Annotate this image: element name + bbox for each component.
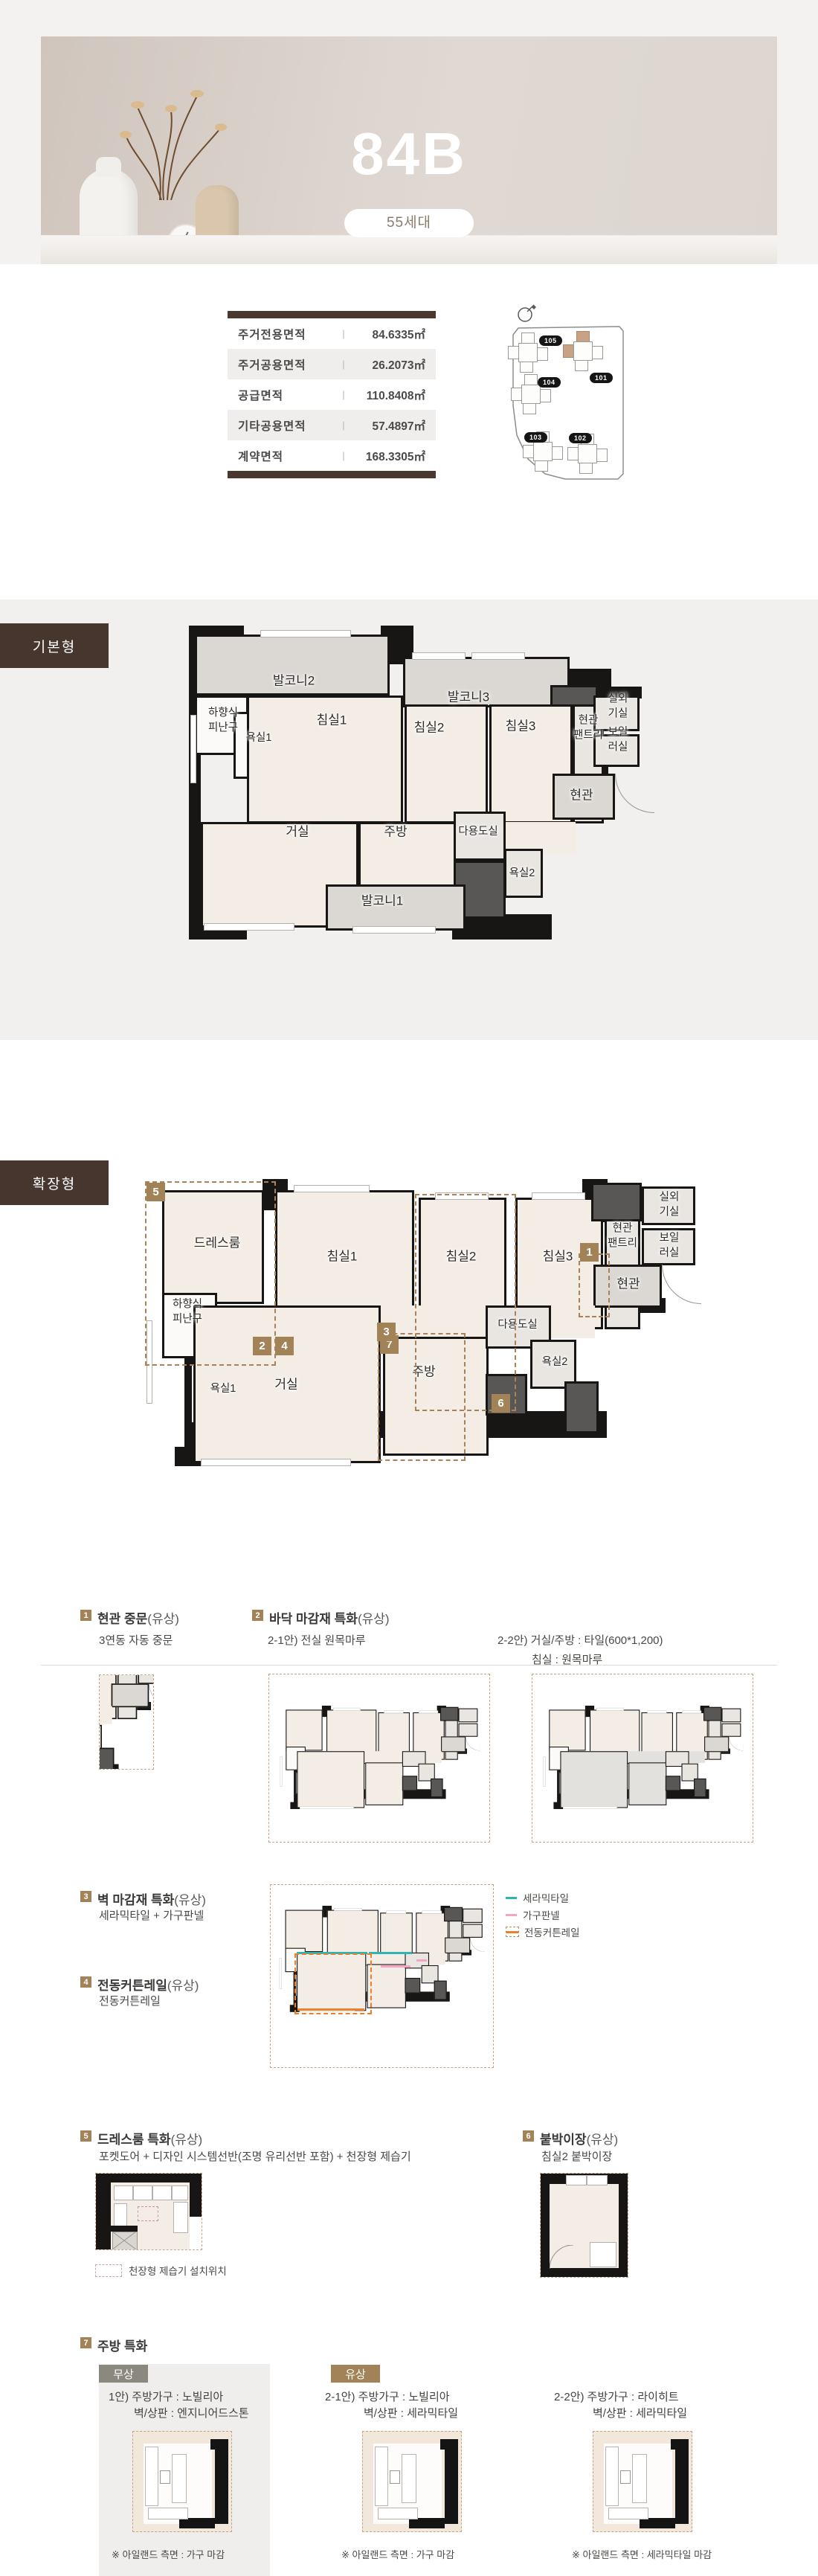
area-table-row: 주거공용면적 | 26.2073㎡	[228, 349, 436, 379]
feature-2-thumbnail-1	[268, 1674, 490, 1843]
building-wing	[518, 343, 538, 362]
room-v3	[431, 1779, 443, 1797]
room-label-boiler: 보일러실	[606, 725, 630, 754]
room-kitchen	[367, 1964, 406, 2008]
kitchen-option-text: 2-1안) 주방가구 : 노빌리아 벽/상판 : 세라믹타일	[325, 2389, 458, 2422]
room-label-living: 거실	[286, 824, 309, 841]
room-boiler	[138, 1674, 154, 1684]
feature-6-number-badge: 6	[523, 2130, 534, 2142]
room-label-bed3: 침실3	[506, 719, 536, 736]
entry-door-arc	[729, 1736, 743, 1750]
feature-3-sub: 세라믹타일 + 가구판넬	[99, 1907, 204, 1923]
entry-door-arc	[466, 1736, 480, 1750]
room-dress	[549, 1709, 585, 1750]
room-v1	[440, 1707, 458, 1721]
feature-4-header: 4 전동커튼레일(유상)	[80, 1975, 199, 1994]
area-row-value: 57.4897㎡	[352, 417, 425, 434]
feature-1-thumbnail	[99, 1674, 154, 1770]
feature-number-badge-3: 3	[377, 1323, 396, 1341]
feature-2-number-badge: 2	[252, 1610, 263, 1621]
building-wing	[578, 444, 597, 463]
curtain-rail-zone	[294, 1953, 372, 2014]
entry-door-arc	[615, 774, 654, 813]
window	[294, 1185, 370, 1192]
dehumidifier-location-mark	[138, 2206, 158, 2221]
room-v3	[434, 1981, 447, 2000]
table-bottom-bar	[228, 471, 436, 478]
window	[334, 1908, 362, 1911]
feature-6-title: 붙박이장(유상)	[540, 2129, 618, 2148]
feature-6-header: 6 붙박이장(유상)	[523, 2129, 618, 2148]
area-row-value: 84.6335㎡	[352, 326, 425, 342]
room-boiler	[463, 1924, 483, 1938]
area-table-row: 주거전용면적 | 84.6335㎡	[228, 318, 436, 349]
legend-color-swatch	[506, 1897, 517, 1899]
area-row-divider: |	[335, 359, 352, 370]
room-outdoor	[458, 1709, 477, 1723]
area-row-value: 26.2073㎡	[352, 356, 425, 373]
kitchen-plan-3	[593, 2431, 692, 2532]
window	[384, 1710, 403, 1713]
room-label-bed1: 침실1	[317, 713, 347, 730]
room-hall	[99, 1706, 112, 1724]
window	[280, 1756, 283, 1786]
window	[647, 1710, 666, 1713]
room-kitchen	[628, 1762, 666, 1805]
area-row-value: 110.8408㎡	[352, 387, 425, 403]
room-v2	[666, 1776, 680, 1790]
area-table: 주거전용면적 | 84.6335㎡주거공용면적 | 26.2073㎡공급면적 |…	[228, 311, 436, 478]
section-divider	[41, 1665, 777, 1666]
room-v1	[703, 1707, 721, 1721]
feature-2-title: 바닥 마감재 특화(유상)	[269, 1608, 390, 1627]
area-row-divider: |	[335, 389, 352, 400]
expanded-type-tag: 확장형	[0, 1160, 109, 1205]
feature-7-title: 주방 특화	[97, 2336, 147, 2354]
building-wing	[521, 385, 541, 404]
wall-legend-item: 세라믹타일	[506, 1890, 569, 1905]
room-entry	[704, 1736, 729, 1752]
window	[596, 1708, 624, 1711]
feature-4-title: 전동커튼레일(유상)	[97, 1975, 199, 1994]
building-101: 101	[563, 331, 602, 370]
window	[563, 1806, 617, 1809]
paid-badge: 유상	[331, 2365, 380, 2383]
room-label-pantry: 현관 팬트리	[608, 1221, 637, 1250]
curtain-rail-legend-swatch	[506, 1927, 519, 1937]
building-103: 103	[523, 431, 561, 470]
building-label-104: 104	[538, 377, 561, 388]
room-outdoor	[721, 1709, 741, 1723]
area-row-label: 공급면적	[238, 387, 335, 403]
mini-expanded-plan-drawing	[280, 1706, 479, 1810]
room-label-boiler: 보일러실	[654, 1231, 684, 1260]
building-wing	[573, 341, 593, 361]
room-label-bath2: 욕실2	[542, 1355, 568, 1370]
window	[386, 1911, 406, 1914]
room-label-bed3: 침실3	[543, 1249, 573, 1266]
feature-1-title: 현관 중문(유상)	[97, 1608, 179, 1627]
window	[412, 652, 466, 660]
curtain-rail-highlight	[297, 2008, 364, 2011]
room-label-bath2: 욕실2	[509, 867, 535, 881]
room-v2	[402, 1776, 417, 1790]
area-row-divider: |	[335, 450, 352, 461]
feature-3-header: 3 벽 마감재 특화(유상)	[80, 1889, 206, 1908]
kitchen-island	[632, 2454, 647, 2503]
room-entry	[112, 1683, 149, 1707]
room-label-bed2: 침실2	[414, 720, 445, 737]
feature-5-header: 5 드레스룸 특화(유상)	[80, 2129, 202, 2148]
building-wing	[533, 442, 553, 461]
window	[201, 1459, 351, 1466]
feature-number-badge-5: 5	[146, 1183, 165, 1201]
feature-zone-outline	[579, 1253, 610, 1317]
window	[280, 1958, 282, 1988]
feature-2-thumbnail-2	[532, 1674, 753, 1843]
feature-4-number-badge: 4	[80, 1976, 91, 1988]
feature-2-option1: 2-1안) 전실 원목마루	[268, 1632, 366, 1648]
window	[471, 652, 525, 660]
building-label-103: 103	[524, 432, 547, 443]
room-v1	[591, 1183, 642, 1221]
window	[532, 1192, 585, 1200]
room-label-bed1: 침실1	[327, 1249, 358, 1266]
area-row-label: 주거공용면적	[238, 356, 335, 373]
mini-expanded-plan-drawing	[543, 1706, 742, 1810]
window	[260, 630, 351, 637]
window	[333, 1708, 361, 1711]
building-label-101: 101	[590, 373, 613, 383]
kitchen-option-text: 1안) 주방가구 : 노빌리아 벽/상판 : 엔지니어드스톤	[109, 2389, 249, 2422]
area-table-row: 기타공용면적 | 57.4897㎡	[228, 410, 436, 440]
kitchen-island	[402, 2454, 416, 2503]
feature-7-number-badge: 7	[80, 2337, 91, 2348]
compass-icon	[518, 305, 536, 321]
mini-expanded-plan-drawing	[99, 1674, 154, 1770]
room-dress	[286, 1709, 322, 1750]
room-entry	[445, 1938, 470, 1953]
room-label-pantry: 현관 팬트리	[573, 713, 603, 742]
feature-1-header: 1 현관 중문(유상)	[80, 1608, 179, 1627]
building-label-102: 102	[569, 433, 592, 443]
feature-7-header: 7 주방 특화	[80, 2336, 147, 2354]
feature-5-number-badge: 5	[80, 2130, 91, 2142]
window	[204, 923, 294, 931]
feature-5-sub: 포켓도어 + 디자인 시스템선반(조명 유리선반 포함) + 천장형 제습기	[99, 2148, 411, 2164]
window	[300, 1806, 354, 1809]
area-table-row: 공급면적 | 110.8408㎡	[228, 379, 436, 410]
unit-type-title: 84B	[41, 124, 777, 184]
room-label-kitchen: 주방	[384, 824, 407, 841]
feature-number-badge-1: 1	[580, 1243, 599, 1262]
feature-number-badge-2: 2	[253, 1337, 271, 1355]
room-label-balc3: 발코니3	[448, 690, 489, 707]
feature-5-title: 드레스룸 특화(유상)	[97, 2129, 202, 2148]
feature-6-sub: 침실2 붙박이장	[541, 2148, 612, 2164]
dehumidifier-legend-swatch	[95, 2264, 122, 2277]
building-label-105: 105	[539, 335, 562, 346]
room-label-balc2: 발코니2	[273, 673, 315, 690]
room-label-entry: 현관	[616, 1276, 640, 1294]
room-label-bath1: 욕실1	[246, 731, 272, 746]
area-row-divider: |	[335, 420, 352, 431]
dehumidifier-legend: 천장형 제습기 설치위치	[95, 2263, 227, 2278]
room-dress	[286, 1910, 323, 1953]
kitchen-option-note: ※ 아일랜드 측면 : 가구 마감	[112, 2547, 225, 2561]
feature-4-sub: 전동커튼레일	[99, 1993, 161, 2008]
site-map: 105101104103102	[495, 301, 688, 491]
room-label-outdoor: 실외기실	[654, 1190, 684, 1219]
room-v3	[564, 1381, 599, 1433]
room-label-utility: 다용도실	[458, 825, 497, 840]
room-label-outdoor: 실외기실	[606, 692, 630, 721]
household-count-badge: 55세대	[344, 209, 474, 237]
kitchen-plan-2	[362, 2431, 462, 2532]
kitchen-option-text: 2-2안) 주방가구 : 라이히트 벽/상판 : 세라믹타일	[554, 2389, 687, 2422]
feature-1-sub: 3연동 자동 중문	[99, 1632, 173, 1648]
furniture-panel-highlight-2	[416, 1959, 427, 1962]
brochure-page: 84B 55세대 주거전용면적 | 84.6335㎡주거공용면적 | 26.20…	[0, 0, 818, 2576]
window	[190, 715, 196, 783]
room-label-entry: 현관	[570, 788, 593, 805]
shelf-decor	[41, 235, 777, 264]
bedroom2-closet-plan	[540, 2173, 628, 2278]
room-v2	[405, 1978, 420, 1994]
feature-1-number-badge: 1	[80, 1610, 91, 1621]
room-boiler	[721, 1724, 741, 1737]
legend-color-swatch	[506, 1914, 517, 1916]
hero-band: 84B 55세대	[0, 0, 818, 264]
room-kitchen	[365, 1762, 403, 1805]
area-row-divider: |	[335, 328, 352, 339]
feature-3-number-badge: 3	[80, 1891, 91, 1902]
window	[352, 926, 436, 934]
building-104: 104	[511, 374, 550, 413]
basic-type-tag: 기본형	[0, 623, 109, 668]
feature-2-option2-line2: 침실 : 원목마루	[532, 1651, 602, 1667]
feature-2-header: 2 바닥 마감재 특화(유상)	[252, 1608, 390, 1627]
area-row-label: 기타공용면적	[238, 417, 335, 434]
window	[544, 1756, 546, 1786]
room-label-bath1: 욕실1	[210, 1382, 236, 1397]
area-row-label: 주거전용면적	[238, 326, 335, 342]
dressroom-detail-plan	[95, 2173, 202, 2250]
ceramic-tile-highlight-2	[369, 1952, 412, 1954]
room-label-balc1: 발코니1	[361, 893, 403, 910]
room-v3	[99, 1748, 115, 1770]
wall-finish-plan-thumbnail	[270, 1884, 494, 2068]
room-label-living: 거실	[274, 1377, 297, 1394]
feature-number-badge-4: 4	[275, 1337, 294, 1355]
table-top-bar	[228, 311, 436, 318]
room-boiler	[458, 1724, 477, 1737]
kitchen-island	[172, 2454, 187, 2503]
window	[419, 1710, 438, 1713]
room-label-escape: 하향식 피난구	[208, 706, 238, 735]
room-living	[560, 1751, 628, 1808]
feature-number-badge-6: 6	[492, 1394, 510, 1413]
kitchen-plan-1	[132, 2431, 232, 2532]
room-v1	[444, 1907, 463, 1921]
room-entry	[441, 1736, 466, 1752]
furniture-panel-highlight	[381, 1965, 410, 1968]
kitchen-option-note: ※ 아일랜드 측면 : 세라믹타일 마감	[572, 2547, 712, 2561]
entry-door-arc	[662, 1265, 701, 1304]
wall-legend-item: 가구판넬	[506, 1907, 560, 1922]
area-table-row: 계약면적 | 168.3305㎡	[228, 440, 436, 471]
building-105: 105	[508, 333, 547, 371]
kitchen-option-note: ※ 아일랜드 측면 : 가구 마감	[341, 2547, 454, 2561]
feature-3-title: 벽 마감재 특화(유상)	[97, 1889, 206, 1908]
room-v3	[694, 1779, 706, 1797]
built-in-closet	[590, 2242, 616, 2267]
building-102: 102	[567, 434, 606, 472]
window	[422, 1911, 442, 1914]
hero-photo: 84B 55세대	[41, 36, 777, 264]
expanded-plan-drawing: 드레스룸하향식 피난구욕실1침실1침실2침실3현관 팬트리실외기실보일러실현관거…	[145, 1179, 699, 1469]
entry-door-arc	[470, 1938, 485, 1953]
area-row-value: 168.3305㎡	[352, 448, 425, 464]
wall-legend-item: 전동커튼레일	[506, 1924, 580, 1939]
area-row-label: 계약면적	[238, 448, 335, 464]
room-outdoor	[463, 1909, 483, 1923]
feature-2-option2-line1: 2-2안) 거실/주방 : 타일(600*1,200)	[497, 1632, 663, 1648]
free-badge: 무상	[99, 2365, 148, 2383]
basic-plan-drawing: 발코니2발코니3하향식 피난구욕실1침실1침실2침실3현관 팬트리실외기실보일러…	[189, 626, 642, 939]
room-living	[297, 1751, 364, 1808]
window	[682, 1710, 701, 1713]
